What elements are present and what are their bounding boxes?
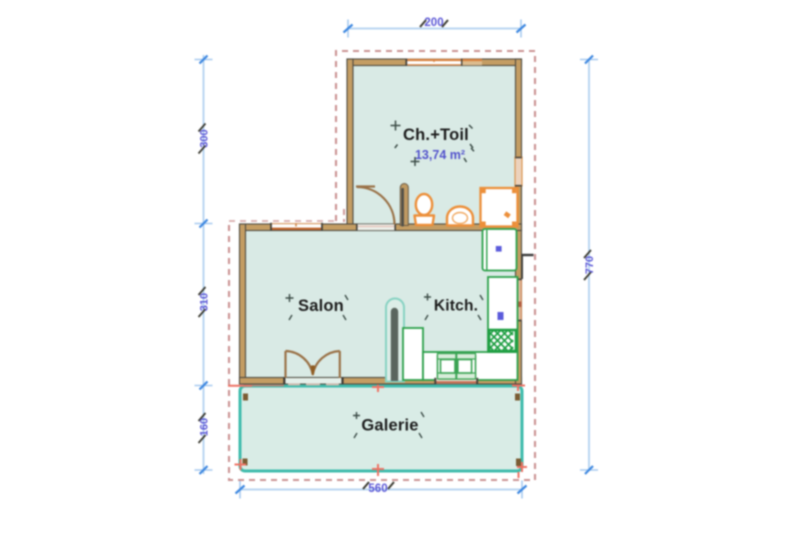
svg-text:13,74 m²: 13,74 m² [415, 148, 465, 162]
svg-text:Kitch.: Kitch. [434, 298, 478, 315]
svg-text:160: 160 [199, 418, 211, 436]
svg-text:300: 300 [199, 129, 211, 147]
svg-text:Salon: Salon [298, 297, 344, 315]
svg-text:Ch.+Toil: Ch.+Toil [403, 126, 469, 144]
svg-text:310: 310 [199, 293, 211, 311]
svg-text:560: 560 [368, 483, 387, 495]
svg-text:200: 200 [424, 17, 443, 29]
svg-text:Galerie: Galerie [361, 417, 418, 435]
svg-text:770: 770 [584, 256, 596, 274]
